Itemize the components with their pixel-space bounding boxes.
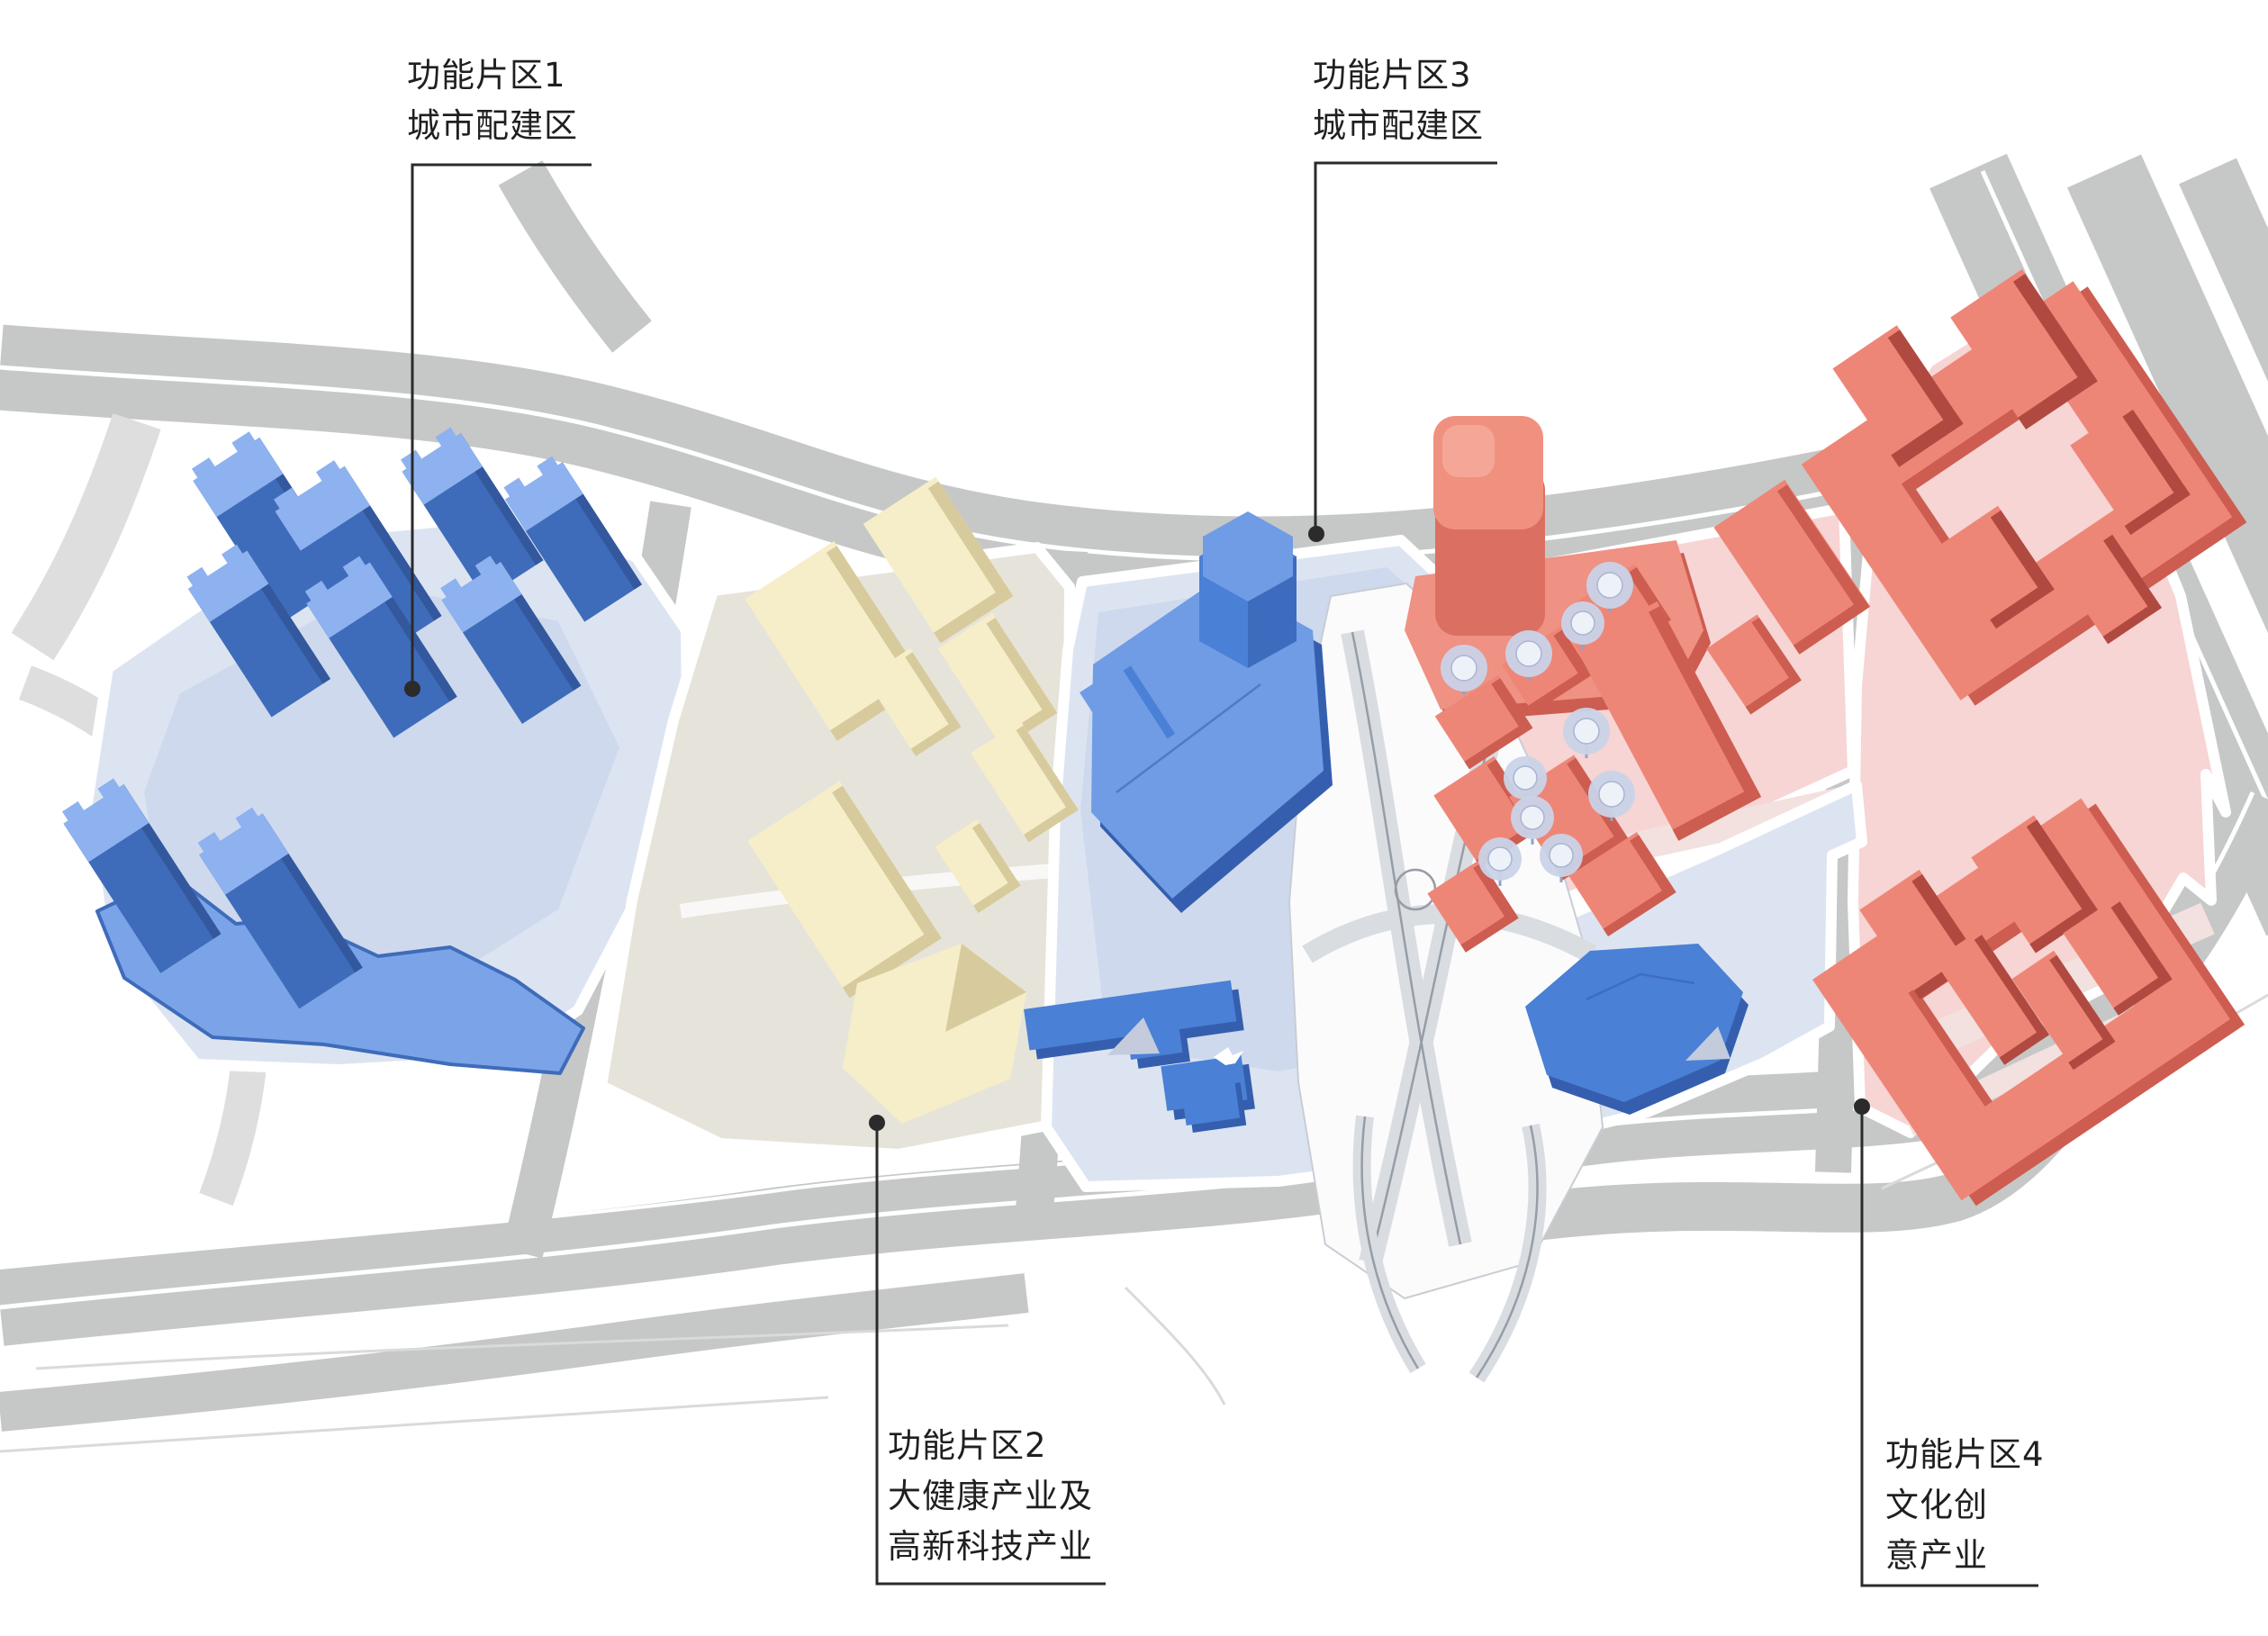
- zone2-label: 功能片区2 大健康产业及 高新科技产业: [888, 1421, 1093, 1572]
- blue-hex-tower: [1199, 511, 1297, 668]
- zone2-label-line1: 功能片区2: [888, 1421, 1093, 1471]
- zone2-label-line3: 高新科技产业: [888, 1522, 1093, 1572]
- zone1-label-line2: 城市配建区: [407, 101, 578, 151]
- red-round-tower: [1433, 416, 1545, 636]
- zone3-label-line2: 城市配建区: [1313, 101, 1484, 151]
- zone4-label-line1: 功能片区4: [1885, 1430, 2045, 1480]
- zone2-leader-dot: [869, 1115, 885, 1131]
- blue-small-block: [1180, 1074, 1246, 1134]
- zone3-label: 功能片区3 城市配建区: [1313, 50, 1484, 151]
- masterplan-diagram: 功能片区1 城市配建区 功能片区3 城市配建区 功能片区2 大健康产业及 高新科…: [0, 0, 2268, 1636]
- zone4-leader-dot: [1854, 1098, 1870, 1115]
- zone4-label-line2: 文化创: [1885, 1480, 2045, 1531]
- zone4-label: 功能片区4 文化创 意产业: [1885, 1430, 2045, 1581]
- zone3-label-line1: 功能片区3: [1313, 50, 1484, 101]
- ground-line: [1125, 1288, 1224, 1405]
- left-branch-road: [32, 421, 137, 646]
- zone2-label-line2: 大健康产业及: [888, 1471, 1093, 1522]
- zone1-leader-dot: [404, 681, 420, 697]
- masterplan-svg: [0, 0, 2268, 1636]
- top-stub-road: [520, 173, 632, 337]
- zone4-label-line3: 意产业: [1885, 1531, 2045, 1581]
- zone3-leader-dot: [1308, 526, 1324, 542]
- zone1-label-line1: 功能片区1: [407, 50, 578, 101]
- zone1-label: 功能片区1 城市配建区: [407, 50, 578, 151]
